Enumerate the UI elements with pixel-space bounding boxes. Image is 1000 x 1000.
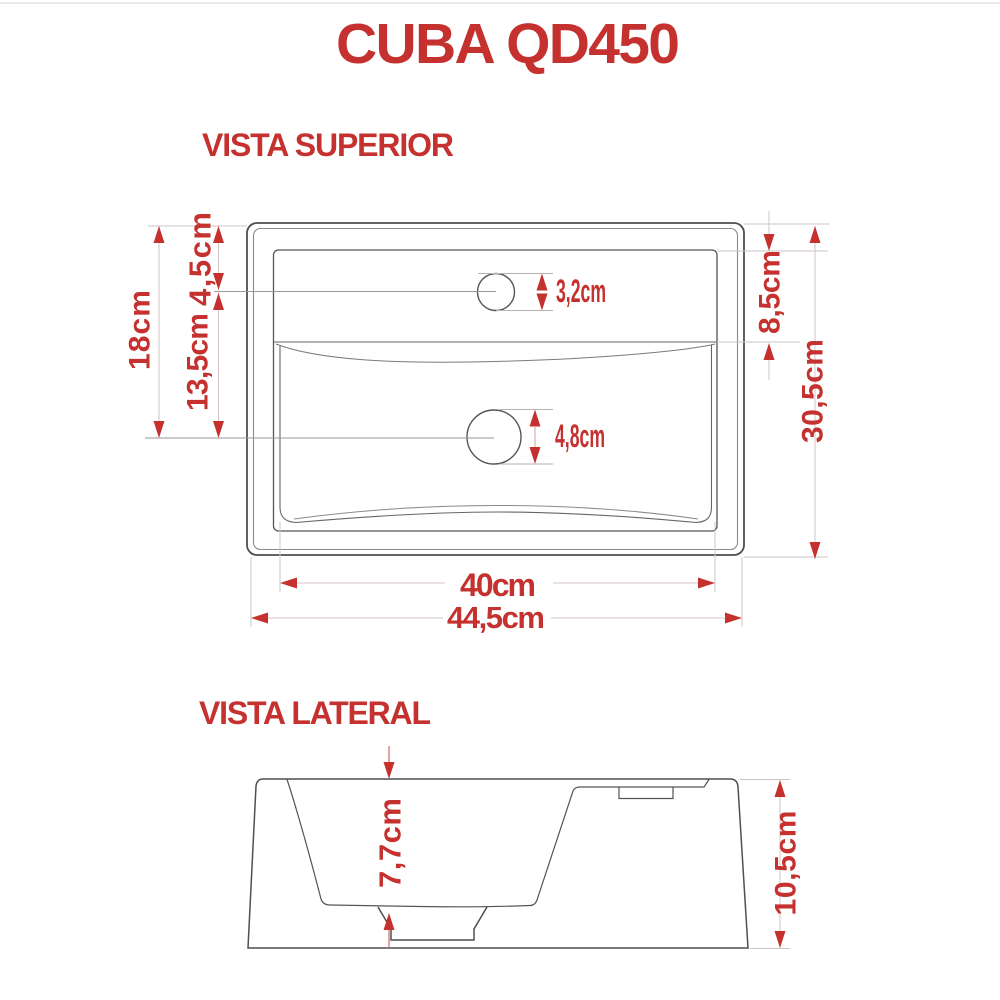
svg-text:7,7cm: 7,7cm xyxy=(373,798,408,888)
svg-text:8,5cm: 8,5cm xyxy=(754,250,787,334)
svg-text:4,8cm: 4,8cm xyxy=(555,418,605,454)
svg-text:30,5cm: 30,5cm xyxy=(797,339,830,443)
svg-text:10,5cm: 10,5cm xyxy=(770,811,803,916)
svg-text:3,2cm: 3,2cm xyxy=(556,273,606,309)
svg-text:VISTA SUPERIOR: VISTA SUPERIOR xyxy=(202,127,454,163)
svg-text:VISTA LATERAL: VISTA LATERAL xyxy=(199,695,431,731)
svg-text:40cm: 40cm xyxy=(460,567,536,603)
svg-text:44,5cm: 44,5cm xyxy=(447,600,545,635)
svg-text:18cm: 18cm xyxy=(124,290,157,370)
svg-text:CUBA QD450: CUBA QD450 xyxy=(336,12,680,76)
svg-text:13,5cm: 13,5cm xyxy=(182,313,215,411)
svg-text:4,5cm: 4,5cm xyxy=(183,212,218,306)
